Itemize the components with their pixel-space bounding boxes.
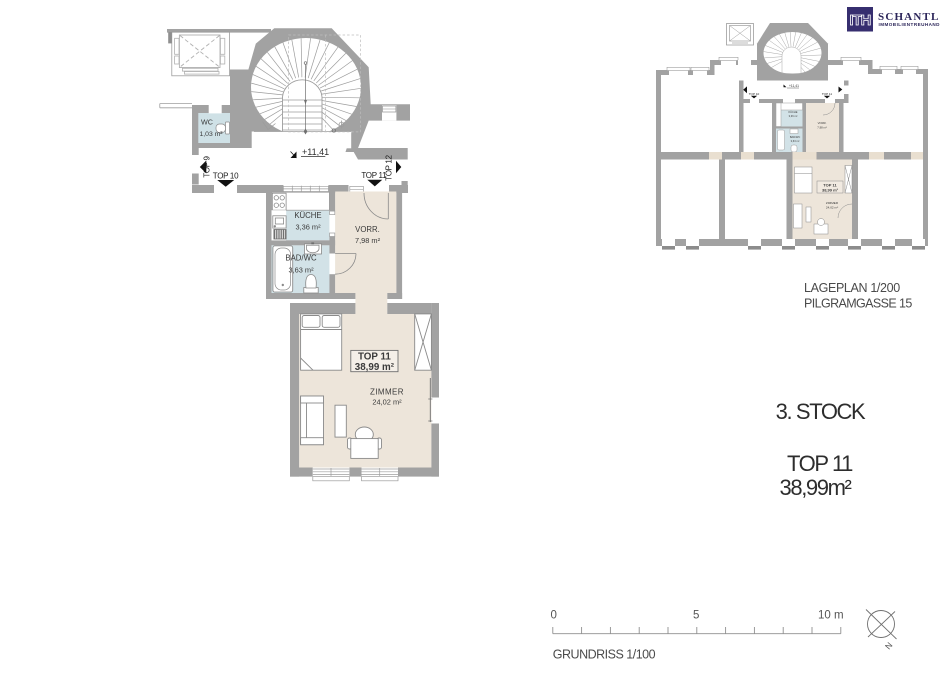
svg-text:BAD/WC: BAD/WC	[790, 135, 801, 139]
svg-text:TOP 10: TOP 10	[749, 92, 760, 96]
svg-text:5: 5	[693, 610, 699, 622]
svg-text:KÜCHE: KÜCHE	[788, 110, 797, 114]
svg-text:ZIMMER: ZIMMER	[370, 388, 404, 397]
svg-text:+11,41: +11,41	[302, 147, 329, 157]
svg-text:PILGRAMGASSE 15: PILGRAMGASSE 15	[804, 297, 912, 311]
svg-text:1,03 m²: 1,03 m²	[200, 131, 224, 138]
svg-text:3,63 m²: 3,63 m²	[791, 139, 800, 143]
svg-text:LAGEPLAN 1/200: LAGEPLAN 1/200	[804, 281, 900, 295]
svg-text:10 m: 10 m	[818, 610, 844, 622]
svg-text:WC: WC	[201, 118, 213, 127]
svg-text:38,99m²: 38,99m²	[780, 475, 852, 500]
svg-text:ZIMMER: ZIMMER	[826, 201, 839, 205]
svg-text:TOP 11: TOP 11	[822, 92, 833, 96]
svg-text:3,63 m²: 3,63 m²	[288, 266, 314, 275]
svg-text:ITH: ITH	[850, 13, 871, 29]
svg-text:7,98 m²: 7,98 m²	[817, 126, 827, 130]
svg-text:24,02 m²: 24,02 m²	[826, 206, 838, 210]
svg-text:24,02 m²: 24,02 m²	[372, 398, 402, 407]
svg-text:VORR.: VORR.	[355, 225, 380, 234]
svg-text:KÜCHE: KÜCHE	[294, 211, 321, 220]
svg-text:38,99 m²: 38,99 m²	[355, 362, 395, 373]
svg-text:TOP 10: TOP 10	[213, 172, 239, 181]
svg-text:BAD/WC: BAD/WC	[285, 254, 317, 263]
svg-text:7,98 m²: 7,98 m²	[355, 236, 381, 245]
svg-text:TOP 9: TOP 9	[203, 155, 212, 177]
svg-text:VORR.: VORR.	[818, 121, 827, 125]
svg-text:0: 0	[551, 610, 557, 622]
svg-text:N: N	[883, 640, 895, 651]
svg-text:3. STOCK: 3. STOCK	[776, 399, 866, 424]
svg-text:TOP 11: TOP 11	[361, 171, 387, 180]
svg-text:GRUNDRISS 1/100: GRUNDRISS 1/100	[553, 648, 656, 662]
svg-text:38,99 m²: 38,99 m²	[822, 187, 839, 192]
svg-text:3,36 m²: 3,36 m²	[789, 114, 798, 118]
svg-text:IMMOBILIENTREUHAND: IMMOBILIENTREUHAND	[879, 22, 941, 27]
svg-text:3,36 m²: 3,36 m²	[295, 223, 321, 232]
svg-text:TOP 12: TOP 12	[385, 154, 394, 180]
svg-text:+11,41: +11,41	[789, 84, 799, 88]
svg-text:TOP 11: TOP 11	[787, 451, 853, 476]
